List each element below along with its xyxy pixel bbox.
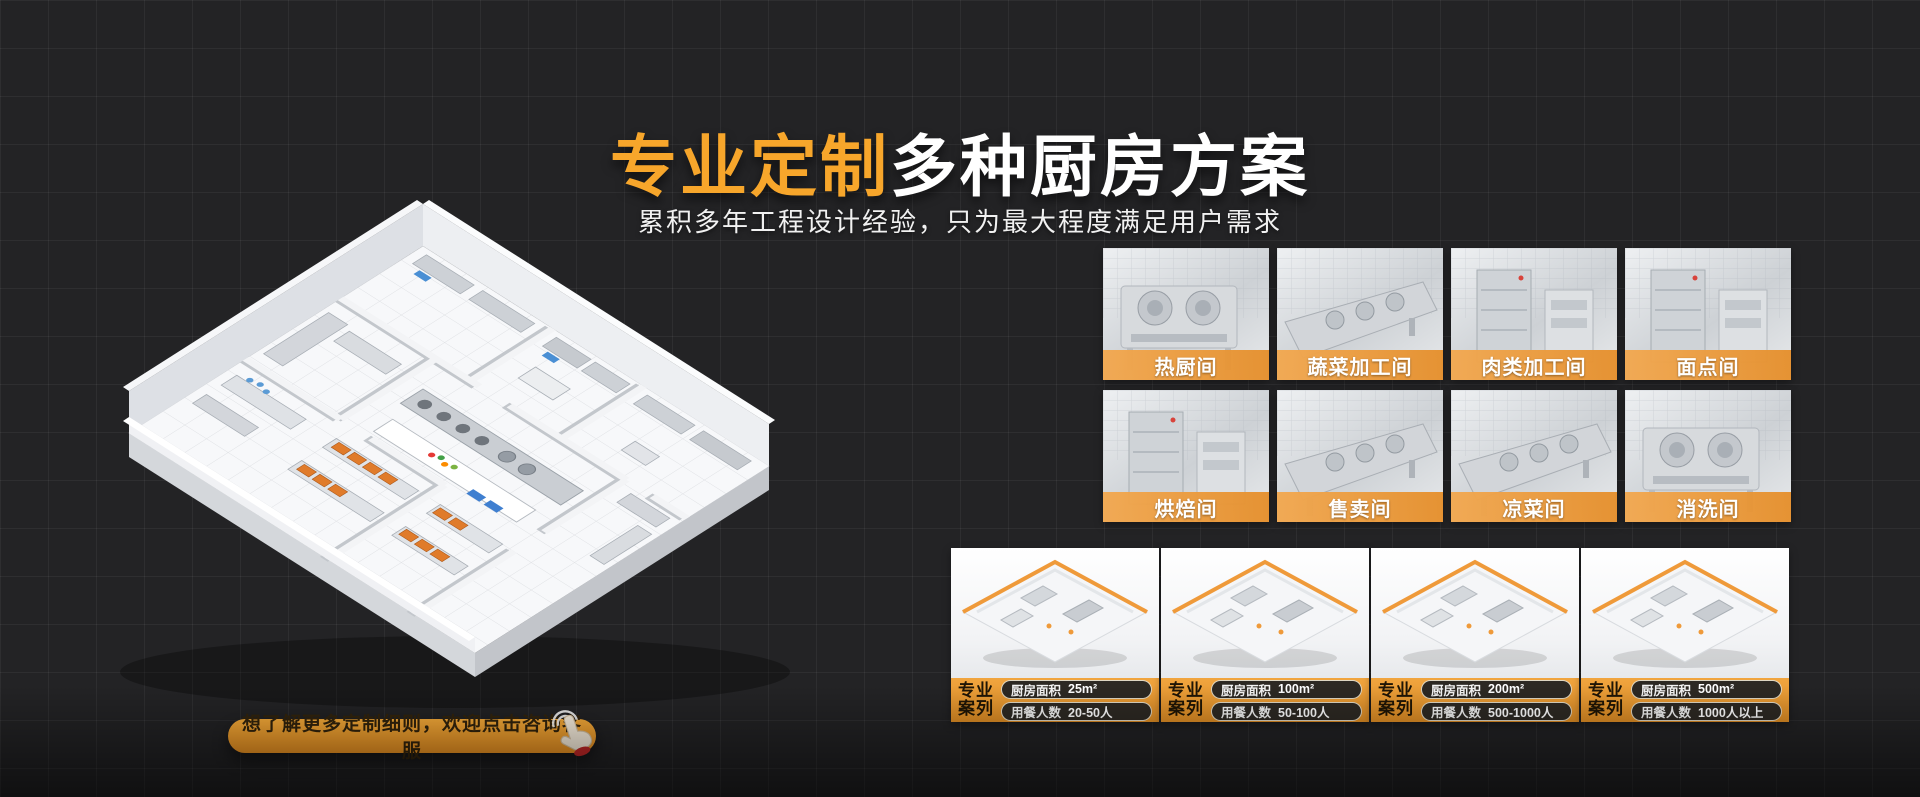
consult-cta-button[interactable]: 想了解更多定制细则，欢迎点击咨询客服 [228,719,596,753]
case-card-100[interactable]: 专业案列 厨房面积100m² 用餐人数50-100人 [1161,548,1369,722]
case-diners-pill: 用餐人数500-1000人 [1421,702,1572,721]
case-area-pill: 厨房面积25m² [1001,680,1152,699]
case-area-pill: 厨房面积500m² [1631,680,1782,699]
case-diners-pill: 用餐人数1000人以上 [1631,702,1782,721]
tap-hand-icon [544,707,600,763]
case-area-pill: 厨房面积200m² [1421,680,1572,699]
room-tile-washing[interactable]: 消洗间 [1625,390,1791,522]
room-label: 烘焙间 [1103,492,1269,522]
case-footer: 专业案列 厨房面积200m² 用餐人数500-1000人 [1371,678,1579,722]
case-card-25[interactable]: 专业案列 厨房面积25m² 用餐人数20-50人 [951,548,1159,722]
case-diners-pill: 用餐人数20-50人 [1001,702,1152,721]
case-photo [1161,548,1369,678]
case-photo [951,548,1159,678]
room-tile-hot-kitchen[interactable]: 热厨间 [1103,248,1269,380]
room-tile-pastry[interactable]: 面点间 [1625,248,1791,380]
page-title: 专业定制多种厨房方案 [0,113,1920,210]
case-footer: 专业案列 厨房面积500m² 用餐人数1000人以上 [1581,678,1789,722]
case-specs: 厨房面积200m² 用餐人数500-1000人 [1421,680,1572,721]
room-label: 肉类加工间 [1451,350,1617,380]
room-tile-meat[interactable]: 肉类加工间 [1451,248,1617,380]
room-label: 蔬菜加工间 [1277,350,1443,380]
case-specs: 厨房面积25m² 用餐人数20-50人 [1001,680,1152,721]
case-badge: 专业案列 [958,682,994,719]
room-tiles-grid: 热厨间 蔬菜加工间 肉类加工间 面点间 烘焙间 售卖间 凉菜间 消洗间 [1103,248,1791,522]
case-specs: 厨房面积500m² 用餐人数1000人以上 [1631,680,1782,721]
case-card-200[interactable]: 专业案列 厨房面积200m² 用餐人数500-1000人 [1371,548,1579,722]
room-tile-vegetable[interactable]: 蔬菜加工间 [1277,248,1443,380]
room-label: 消洗间 [1625,492,1791,522]
room-tile-cold-dishes[interactable]: 凉菜间 [1451,390,1617,522]
case-photo [1371,548,1579,678]
case-footer: 专业案列 厨房面积25m² 用餐人数20-50人 [951,678,1159,722]
case-badge: 专业案列 [1378,682,1414,719]
case-cards-row: 专业案列 厨房面积25m² 用餐人数20-50人 专业案列 [951,548,1789,722]
consult-cta-label: 想了解更多定制细则，欢迎点击咨询客服 [234,709,590,763]
room-label: 热厨间 [1103,350,1269,380]
room-tile-serving[interactable]: 售卖间 [1277,390,1443,522]
page-title-highlight: 专业定制 [610,130,890,205]
kitchen-floorplan-illustration [55,198,800,713]
case-card-500[interactable]: 专业案列 厨房面积500m² 用餐人数1000人以上 [1581,548,1789,722]
case-specs: 厨房面积100m² 用餐人数50-100人 [1211,680,1362,721]
case-footer: 专业案列 厨房面积100m² 用餐人数50-100人 [1161,678,1369,722]
case-badge: 专业案列 [1588,682,1624,719]
room-label: 凉菜间 [1451,492,1617,522]
room-label: 售卖间 [1277,492,1443,522]
kitchen-banner: 专业定制多种厨房方案 累积多年工程设计经验，只为最大程度满足用户需求 [0,0,1920,797]
room-tile-baking[interactable]: 烘焙间 [1103,390,1269,522]
page-title-rest: 多种厨房方案 [890,130,1310,205]
room-label: 面点间 [1625,350,1791,380]
case-photo [1581,548,1789,678]
case-badge: 专业案列 [1168,682,1204,719]
case-diners-pill: 用餐人数50-100人 [1211,702,1362,721]
case-area-pill: 厨房面积100m² [1211,680,1362,699]
